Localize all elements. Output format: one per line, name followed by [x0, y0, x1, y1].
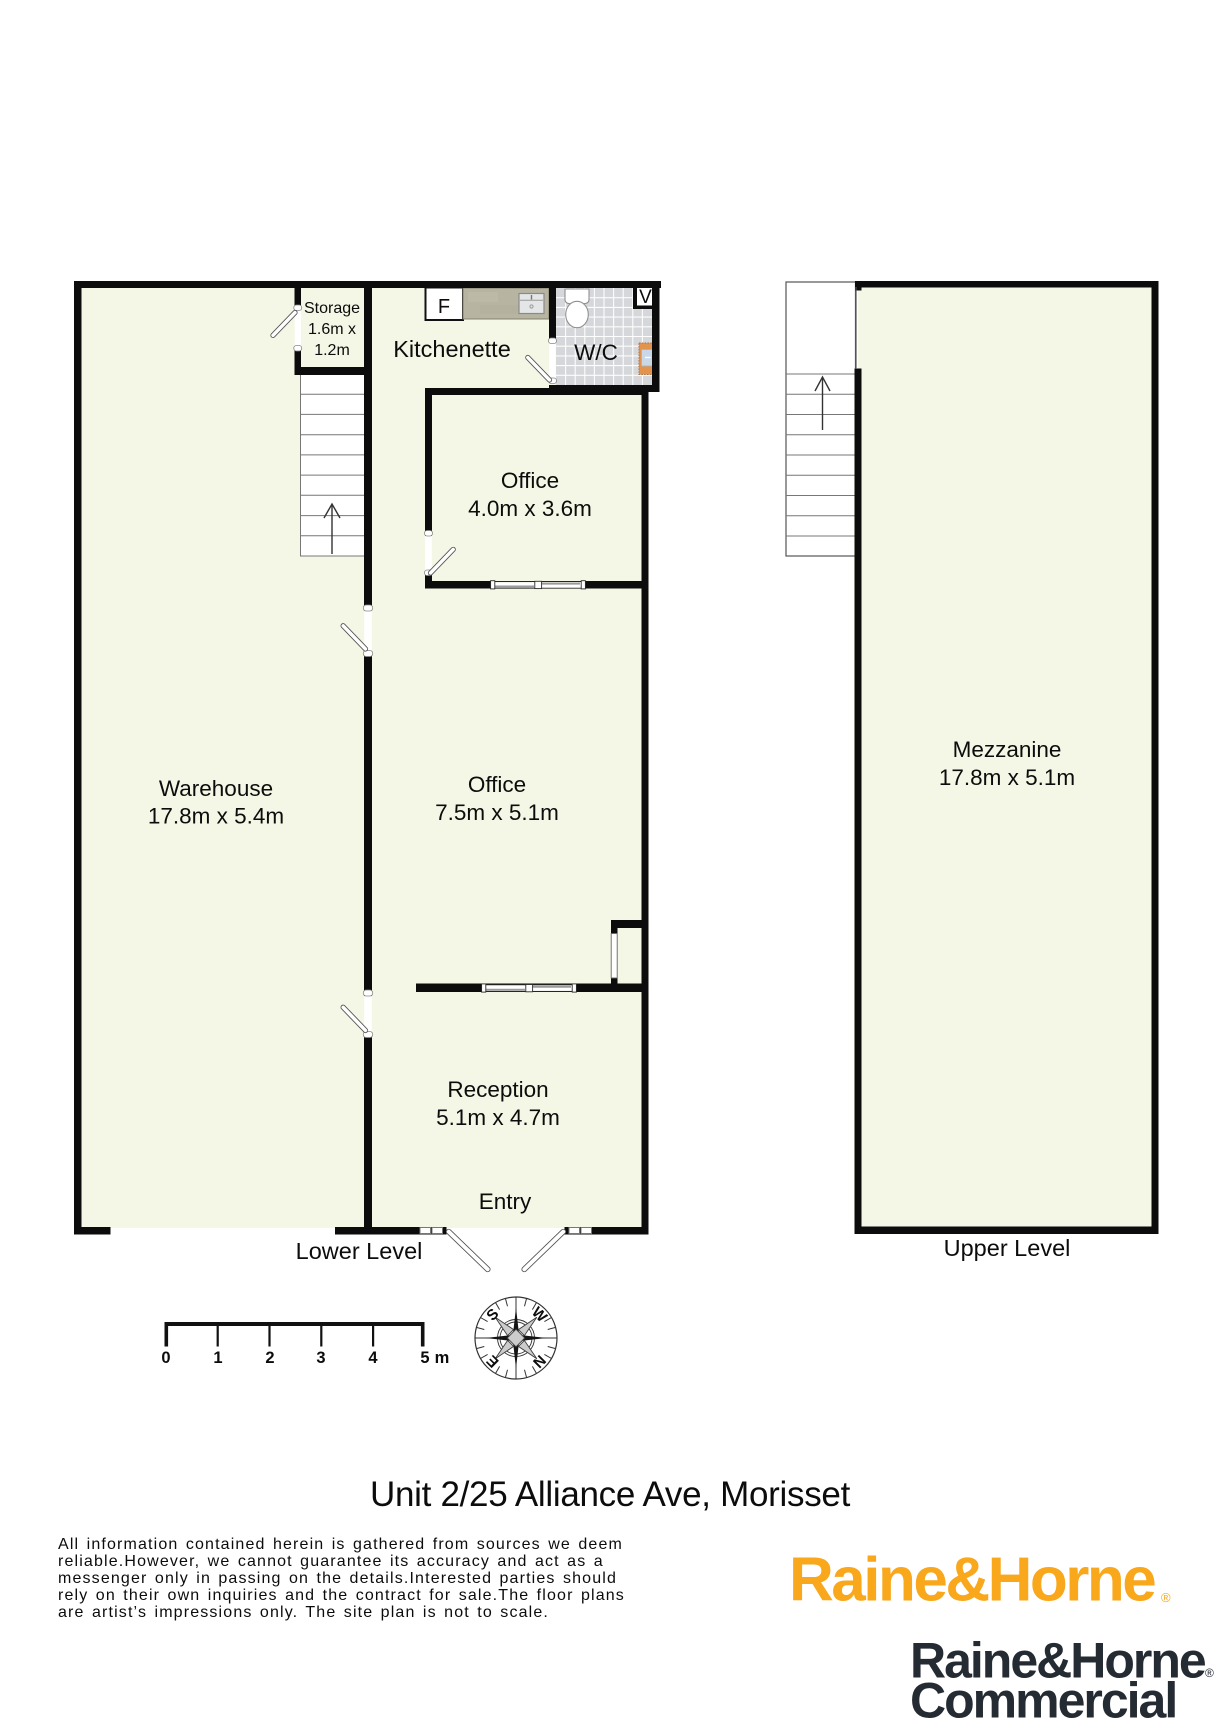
svg-text:messenger only in passing on t: messenger only in passing on the details…	[58, 1570, 617, 1587]
svg-text:m: m	[435, 1349, 450, 1367]
svg-text:All information contained here: All information contained herein is gath…	[58, 1536, 623, 1553]
svg-text:Raine&Horne: Raine&Horne	[789, 1546, 1155, 1615]
svg-text:Unit 2/25 Alliance Ave, Moriss: Unit 2/25 Alliance Ave, Morisset	[370, 1475, 851, 1514]
svg-text:Office: Office	[501, 468, 559, 493]
svg-text:Commercial: Commercial	[910, 1673, 1176, 1729]
svg-text:®: ®	[1205, 1666, 1214, 1680]
svg-text:Lower Level: Lower Level	[296, 1238, 423, 1264]
svg-text:17.8m x 5.1m: 17.8m x 5.1m	[939, 765, 1075, 790]
svg-text:5: 5	[420, 1349, 429, 1367]
svg-text:®: ®	[1161, 1590, 1171, 1605]
svg-text:Warehouse: Warehouse	[159, 776, 273, 801]
svg-text:Storage: Storage	[304, 300, 360, 317]
svg-text:Office: Office	[468, 772, 526, 797]
svg-text:Upper Level: Upper Level	[944, 1235, 1071, 1261]
svg-text:1.6m x: 1.6m x	[308, 321, 356, 338]
svg-text:are artist’s impressions only.: are artist’s impressions only. The site …	[58, 1604, 549, 1621]
svg-text:0: 0	[161, 1349, 170, 1367]
svg-text:1.2m: 1.2m	[314, 342, 350, 359]
svg-text:V: V	[639, 287, 652, 308]
svg-text:rely on their own inquiries an: rely on their own inquiries and the cont…	[58, 1587, 625, 1604]
svg-text:W/C: W/C	[574, 340, 618, 365]
svg-text:4: 4	[368, 1349, 378, 1367]
svg-text:1: 1	[213, 1349, 222, 1367]
svg-text:F: F	[438, 296, 450, 318]
svg-text:3: 3	[316, 1349, 325, 1367]
svg-text:Entry: Entry	[479, 1189, 532, 1214]
svg-text:7.5m x 5.1m: 7.5m x 5.1m	[435, 800, 559, 825]
svg-text:4.0m x 3.6m: 4.0m x 3.6m	[468, 496, 592, 521]
svg-text:Reception: Reception	[447, 1077, 548, 1102]
svg-text:5.1m x 4.7m: 5.1m x 4.7m	[436, 1105, 560, 1130]
svg-text:reliable.However, we cannot gu: reliable.However, we cannot guarantee it…	[58, 1553, 604, 1570]
svg-text:Kitchenette: Kitchenette	[393, 336, 511, 362]
svg-text:2: 2	[265, 1349, 274, 1367]
svg-text:Mezzanine: Mezzanine	[953, 737, 1062, 762]
svg-text:17.8m x 5.4m: 17.8m x 5.4m	[148, 804, 284, 829]
